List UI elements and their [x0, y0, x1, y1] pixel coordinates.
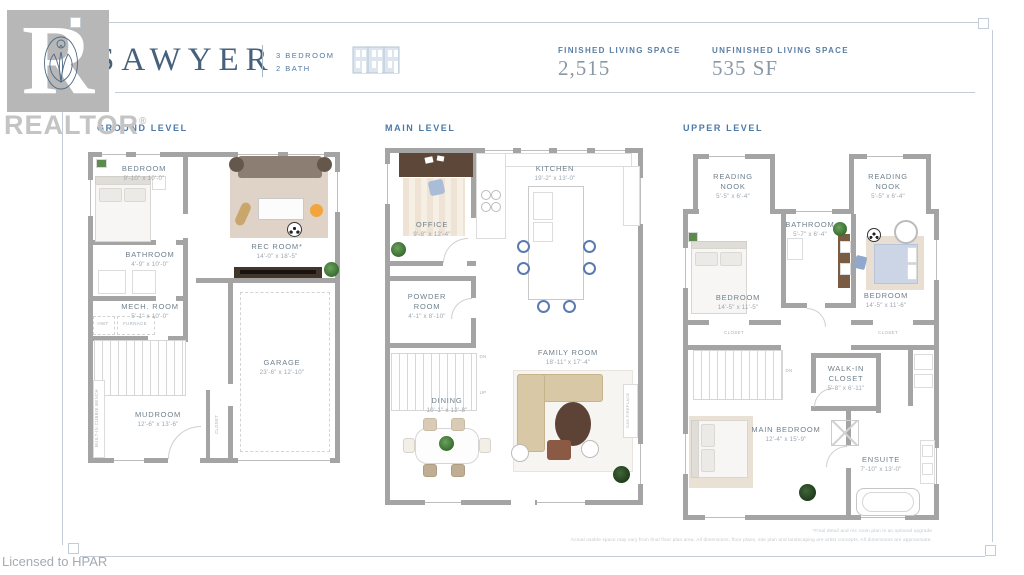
stool — [583, 262, 596, 275]
room-name: ENSUITE — [846, 455, 916, 465]
sofa-arm — [229, 157, 244, 172]
finished-space-label: FINISHED LIVING SPACE — [558, 46, 681, 55]
window — [425, 500, 461, 505]
room-dims: 23'-6" x 12'-10" — [242, 369, 322, 376]
office-chair — [428, 179, 446, 197]
unfinished-space-label: UNFINISHED LIVING SPACE — [712, 46, 849, 55]
pillow — [701, 424, 715, 447]
toilet — [132, 270, 156, 294]
room-dims: 19'-2" x 13'-0" — [515, 175, 595, 182]
floorplan-sheet: R REALTOR® Licensed to HPAR SAWYER 3 BED… — [0, 0, 1024, 575]
window — [385, 164, 390, 204]
pillow — [907, 264, 917, 280]
room-label-kitchen: KITCHEN 19'-2" x 13'-0" — [515, 164, 595, 182]
cubbie-bench-label: BUILT-IN CUBBIE BENCH — [94, 382, 99, 454]
room-name: OFFICE — [392, 220, 472, 230]
upper-level-plan: CLOSET CLOSET DN — [681, 148, 941, 525]
frame-line-right — [992, 30, 993, 542]
room-label-bedroom-right: BEDROOM 14'-5" x 11'-6" — [846, 291, 926, 309]
side-table — [581, 440, 599, 458]
door-opening — [156, 240, 176, 245]
dining-chair — [403, 438, 415, 453]
frame-corner-square — [68, 543, 79, 554]
disclaimer-text: *Final detail and rec room plan is an op… — [540, 527, 932, 544]
room-dims: 5'-5" x 6'-4" — [861, 193, 915, 200]
room-name: KITCHEN — [515, 164, 595, 174]
room-label-mech: MECH. ROOM 5'-1" x 10'-0" — [110, 302, 190, 320]
disclaimer-line1: *Final detail and rec room plan is an op… — [540, 527, 932, 536]
room-name: DINING — [407, 396, 487, 406]
window — [335, 172, 340, 212]
plant-icon — [799, 484, 816, 501]
townhouse-icon — [352, 42, 400, 74]
room-dims: 9'-10" x 10'-0" — [104, 175, 184, 182]
wall — [385, 276, 476, 281]
room-dims: 5'-7" x 6'-4" — [776, 231, 844, 238]
basketball-icon — [310, 204, 323, 217]
room-name: BATHROOM — [776, 220, 844, 230]
room-dims: 18'-11" x 17'-4" — [528, 359, 608, 366]
room-label-powder: POWDER ROOM 4'-1" x 8'-10" — [404, 292, 450, 320]
realtor-word: REALTOR — [4, 110, 139, 140]
soccer-ball-icon — [867, 228, 881, 242]
door-opening — [183, 214, 188, 238]
wall — [811, 353, 881, 358]
room-name: READING NOOK — [706, 172, 760, 192]
registered-symbol: ® — [139, 116, 147, 127]
main-level-plan: DN UP — [385, 148, 643, 505]
upper-level-title: UPPER LEVEL — [683, 123, 763, 133]
room-dims: 12'-4" x 15'-9" — [741, 436, 831, 443]
frame-line-bottom — [80, 556, 985, 557]
round-chair — [894, 220, 918, 244]
wall — [693, 154, 698, 214]
stool — [563, 300, 576, 313]
room-label-bedroom: BEDROOM 9'-10" x 10'-0" — [104, 164, 184, 182]
room-dims: 14'-0" x 18'-5" — [237, 253, 317, 260]
room-dims: 7'-10" x 13'-0" — [846, 466, 916, 473]
plant-icon — [391, 242, 406, 257]
door-arc — [826, 446, 847, 467]
room-label-mudroom: MUDROOM 12'-6" x 13'-6" — [118, 410, 198, 428]
room-dims: 9'-8" x 12'-4" — [392, 231, 472, 238]
window — [102, 152, 126, 157]
door-arc — [168, 426, 201, 459]
sawyer-botanical-logo-icon — [38, 32, 84, 94]
stool — [583, 240, 596, 253]
centerpiece-plant-icon — [439, 436, 454, 451]
window — [867, 154, 903, 159]
stove-burner — [491, 202, 501, 212]
bed-bath-summary: 3 BEDROOM 2 BATH — [276, 49, 335, 75]
closet-door-opening — [709, 320, 749, 325]
wall — [851, 345, 934, 350]
disclaimer-line2: Actual usable space may vary from final … — [540, 536, 932, 545]
wall — [206, 390, 210, 458]
sink — [840, 241, 851, 253]
sink — [922, 445, 933, 457]
room-name: BEDROOM — [104, 164, 184, 174]
hwt-label: HWT — [93, 321, 113, 326]
window — [796, 209, 832, 214]
desk — [399, 153, 473, 177]
plant-icon — [613, 466, 630, 483]
ground-level-plan: HWT FURNACE BUILT-IN CUBBIE BENCH CLOSET… — [88, 152, 340, 468]
room-name: WALK-IN CLOSET — [815, 364, 877, 384]
finished-space-value: 2,515 — [558, 56, 610, 81]
wc-fixture — [914, 354, 933, 370]
island-appliance — [533, 222, 553, 242]
room-dims: 5'-5" x 6'-4" — [706, 193, 760, 200]
tv-screen — [240, 270, 316, 274]
stove-burner — [491, 190, 501, 200]
wall — [849, 154, 854, 214]
plan-title: SAWYER — [96, 42, 275, 79]
pillow — [907, 247, 917, 263]
room-name: BATHROOM — [110, 250, 190, 260]
door-arc — [443, 238, 468, 263]
dining-chair — [479, 438, 491, 453]
window — [705, 515, 745, 520]
header-divider-vertical — [262, 45, 263, 77]
frame-corner-square — [70, 17, 81, 28]
room-name: BEDROOM — [846, 291, 926, 301]
room-dims: 4'-9" x 10'-0" — [110, 261, 190, 268]
sectional-sofa-icon — [517, 374, 545, 452]
linen-closet — [831, 420, 859, 446]
sink — [840, 263, 851, 275]
wall — [385, 343, 476, 348]
window — [683, 434, 688, 474]
room-dims: 4'-1" x 8'-10" — [404, 313, 450, 320]
room-name: GARAGE — [242, 358, 322, 368]
room-label-family: FAMILY ROOM 18'-11" x 17'-4" — [528, 348, 608, 366]
pillow — [695, 252, 718, 266]
main-level-title: MAIN LEVEL — [385, 123, 456, 133]
dining-chair — [451, 464, 465, 477]
room-label-dining: DINING 10'-1" x 12'-8" — [407, 396, 487, 414]
stool — [537, 300, 550, 313]
window — [934, 240, 939, 280]
toilet — [787, 238, 803, 260]
room-label-ensuite: ENSUITE 7'-10" x 13'-0" — [846, 455, 916, 473]
room-name: BEDROOM — [698, 293, 778, 303]
stairs-up-label: UP — [477, 390, 489, 395]
stool — [517, 262, 530, 275]
room-name: READING NOOK — [861, 172, 915, 192]
room-label-bedroom-left: BEDROOM 14'-5" x 11'-5" — [698, 293, 778, 311]
frame-line-top — [80, 22, 978, 23]
bath-count: 2 BATH — [276, 62, 335, 75]
wall — [228, 278, 233, 463]
bathtub-basin — [862, 492, 914, 512]
fireplace-label: GAS FIREPLACE — [626, 388, 630, 432]
fridge — [623, 166, 640, 226]
window — [638, 444, 643, 484]
patio-door-opening — [511, 500, 535, 505]
dining-chair — [423, 464, 437, 477]
bathroom-vanity — [98, 270, 126, 294]
room-dims: 5'-1" x 10'-0" — [110, 313, 190, 320]
stairs-dn-label: DN — [783, 368, 795, 373]
frame-corner-square — [985, 545, 996, 556]
pillow — [124, 188, 146, 202]
header-divider-horizontal — [115, 92, 975, 93]
pillow — [720, 252, 742, 266]
door-opening — [156, 296, 176, 301]
closet-label: CLOSET — [863, 330, 913, 335]
room-name: REC ROOM* — [237, 242, 317, 252]
room-label-nook-left: READING NOOK 5'-5" x 6'-4" — [706, 172, 760, 200]
dining-chair — [423, 418, 437, 431]
plant-icon — [324, 262, 339, 277]
room-name: FAMILY ROOM — [528, 348, 608, 358]
pillow — [99, 188, 122, 202]
stove-burner — [481, 190, 491, 200]
stool — [517, 240, 530, 253]
room-label-bathroom: BATHROOM 4'-9" x 10'-0" — [110, 250, 190, 268]
window — [683, 248, 688, 288]
stairs — [693, 350, 783, 400]
window — [114, 458, 144, 463]
room-dims: 14'-5" x 11'-5" — [698, 304, 778, 311]
room-name: MAIN BEDROOM — [741, 425, 831, 435]
room-label-main-bedroom: MAIN BEDROOM 12'-4" x 15'-9" — [741, 425, 831, 443]
wall — [908, 348, 913, 406]
window — [709, 154, 745, 159]
wall — [196, 278, 340, 283]
room-name: MUDROOM — [118, 410, 198, 420]
room-label-upper-bathroom: BATHROOM 5'-7" x 6'-4" — [776, 220, 844, 238]
unfinished-space-value: 535 SF — [712, 56, 778, 81]
realtor-watermark-text: REALTOR® — [4, 110, 147, 141]
garage-door — [238, 458, 330, 463]
closet-door-opening — [873, 320, 913, 325]
side-table — [511, 444, 529, 462]
sink — [922, 463, 933, 475]
closet-label: CLOSET — [709, 330, 759, 335]
room-name: POWDER ROOM — [404, 292, 450, 312]
pillow — [701, 449, 715, 472]
stove-burner — [481, 202, 491, 212]
wall — [770, 154, 775, 214]
room-dims: 14'-5" x 11'-6" — [846, 302, 926, 309]
armchair — [547, 440, 571, 460]
stairs-dn-label: DN — [477, 354, 489, 359]
door-arc — [451, 298, 472, 319]
desk-paper — [437, 155, 445, 161]
furnace-label: FURNACE — [117, 321, 153, 326]
wall — [926, 154, 931, 214]
window — [136, 152, 160, 157]
soccer-ball-icon — [287, 222, 302, 237]
room-label-nook-right: READING NOOK 5'-5" x 6'-4" — [861, 172, 915, 200]
sofa-arm — [317, 157, 332, 172]
door-opening — [228, 384, 233, 406]
window — [537, 500, 585, 505]
stairs — [94, 340, 186, 396]
room-label-garage: GARAGE 23'-6" x 12'-10" — [242, 358, 322, 376]
room-label-office: OFFICE 9'-8" x 12'-4" — [392, 220, 472, 238]
bedroom-count: 3 BEDROOM — [276, 49, 335, 62]
room-name: MECH. ROOM — [110, 302, 190, 312]
dining-chair — [451, 418, 465, 431]
licensed-watermark: Licensed to HPAR — [2, 554, 107, 569]
window — [88, 180, 93, 216]
room-label-walkin: WALK-IN CLOSET 5'-8" x 6'-11" — [815, 364, 877, 392]
coffee-table — [258, 198, 304, 220]
door-arc — [807, 308, 826, 327]
room-dims: 10'-1" x 12'-8" — [407, 407, 487, 414]
room-dims: 5'-8" x 6'-11" — [815, 385, 877, 392]
island-sink — [533, 192, 553, 220]
frame-corner-square — [978, 18, 989, 29]
wc-fixture — [914, 374, 933, 388]
room-dims: 12'-6" x 13'-6" — [118, 421, 198, 428]
closet-label: CLOSET — [214, 402, 219, 446]
room-label-rec: REC ROOM* 14'-0" x 18'-5" — [237, 242, 317, 260]
sofa-icon — [238, 156, 322, 178]
